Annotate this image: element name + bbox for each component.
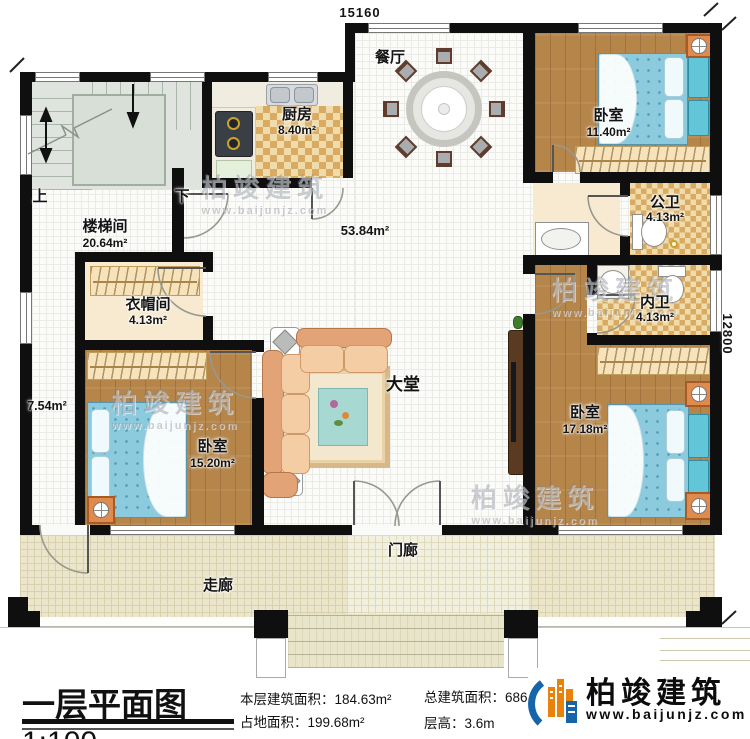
- bedroom2-nightstand: [686, 34, 712, 58]
- room-label-porch: 门廊: [373, 543, 433, 560]
- dining-table-center: [438, 103, 450, 115]
- stat-footprint: 占地面积：199.68m²: [240, 711, 365, 731]
- bedroom2-pillow-2: [664, 99, 684, 139]
- title-underline: [22, 719, 234, 724]
- room-label-bedroom1: 卧室: [160, 439, 265, 456]
- wall: [343, 82, 353, 178]
- window: [710, 195, 722, 255]
- wall: [620, 236, 630, 255]
- plan-title: 一层平面图: [22, 686, 187, 723]
- window: [35, 72, 80, 82]
- bedroom3-nightstand-2: [685, 492, 713, 520]
- window: [558, 525, 683, 535]
- stair-landing: [72, 94, 166, 186]
- ground-line-right: [660, 638, 750, 639]
- door-opening-hallway: [40, 525, 90, 535]
- wall: [75, 252, 213, 262]
- bedroom2-pillow-1: [664, 57, 684, 97]
- chair: [489, 101, 505, 117]
- sofa-cushion-left-2: [281, 394, 310, 434]
- room-label-dining: 餐厅: [352, 50, 428, 67]
- bedroom1-nightstand: [87, 496, 115, 524]
- bedroom1-pillow-2: [91, 456, 110, 500]
- room-label-bedroom2: 卧室: [556, 108, 661, 125]
- bedroom1-pillow-1: [91, 409, 110, 453]
- wall: [523, 172, 553, 183]
- bedroom2-wardrobe: [575, 146, 710, 174]
- stove-burner-2: [227, 137, 240, 150]
- corner-step-right2: [686, 611, 702, 627]
- wall: [587, 335, 712, 345]
- bedroom2-shelf-2: [688, 100, 709, 136]
- sofa-armrest-bottom: [262, 472, 298, 498]
- corner-step-right: [700, 597, 722, 627]
- dimension-right: 12800: [720, 298, 734, 370]
- room-area-private-bath: 4.13m²: [612, 311, 698, 324]
- room-area-stairwell: 20.64m²: [55, 237, 155, 250]
- window: [20, 115, 32, 175]
- stat-floor-area: 本层建筑面积：184.63m²: [240, 688, 392, 708]
- wall: [202, 82, 212, 188]
- bedroom3-shelf-1: [688, 414, 709, 458]
- window: [578, 23, 663, 33]
- wall: [523, 33, 535, 172]
- room-area-cloakroom: 4.13m²: [98, 314, 198, 327]
- logo-url: www.baijunjz.com: [586, 706, 747, 722]
- chair: [436, 151, 452, 167]
- logo: 柏竣建筑 www.baijunjz.com: [528, 668, 750, 734]
- room-label-bedroom3: 卧室: [531, 405, 639, 422]
- wall: [75, 340, 255, 350]
- wall: [203, 262, 213, 272]
- title-underline-2: [22, 728, 234, 730]
- entry-steps: [288, 614, 504, 668]
- room-area-bedroom1: 15.20m²: [160, 457, 265, 470]
- wall: [75, 262, 85, 347]
- wall: [523, 255, 535, 274]
- stair-up-label: 上: [28, 189, 52, 206]
- cloakroom-wardrobe: [90, 266, 200, 296]
- window: [150, 72, 205, 82]
- wall: [172, 168, 184, 252]
- step-pillar-right: [504, 610, 538, 638]
- stair-down-label: 下: [170, 189, 194, 206]
- tv-screen: [511, 362, 516, 442]
- wall: [252, 340, 264, 352]
- kitchen-sink-bowl-right: [294, 87, 314, 103]
- chair: [436, 48, 452, 64]
- room-area-public-bath: 4.13m²: [622, 211, 708, 224]
- sofa-cushion-top-2: [344, 345, 388, 373]
- rug-flower-2: [342, 412, 349, 419]
- bedroom3-wardrobe: [597, 347, 710, 375]
- door-opening-entrance: [352, 525, 442, 535]
- bedroom1-wardrobe: [87, 352, 207, 380]
- wall: [533, 255, 587, 265]
- wall: [580, 172, 712, 183]
- window: [368, 23, 450, 33]
- room-area-bedroom2: 11.40m²: [556, 126, 661, 139]
- bedroom2-shelf-1: [688, 56, 709, 98]
- bedroom3-pillow-1: [666, 410, 685, 454]
- wall: [212, 178, 312, 188]
- ground-line-right3: [660, 660, 750, 661]
- stat-height: 层高：3.6m: [424, 712, 495, 732]
- wall: [75, 350, 85, 525]
- room-label-kitchen: 厨房: [257, 107, 337, 124]
- wall: [587, 255, 712, 265]
- room-area-kitchen: 8.40m²: [257, 124, 337, 137]
- sofa-cushion-top-1: [300, 345, 344, 373]
- room-area-hallway: 7.54m²: [12, 400, 82, 414]
- bedroom3-pillow-2: [666, 458, 685, 502]
- kitchen-sink-bowl-left: [270, 87, 290, 103]
- alcove-basin: [541, 228, 581, 250]
- public-bath-drain: [670, 240, 678, 248]
- room-label-hall: 大堂: [361, 376, 445, 395]
- private-bath-basin: [600, 270, 626, 294]
- rug-leaf: [334, 420, 343, 426]
- sofa-cushion-left-3: [281, 434, 310, 474]
- window: [268, 72, 318, 82]
- floor-plan-page: 柏竣建筑www.baijunjz.com 柏竣建筑www.baijunjz.co…: [0, 0, 750, 739]
- open-area-label: 53.84m²: [315, 224, 415, 238]
- corner-step-left2: [24, 611, 40, 627]
- room-label-cloakroom: 衣帽间: [98, 297, 198, 314]
- rug-flower-1: [330, 400, 338, 408]
- bedroom3-nightstand-1: [685, 381, 713, 407]
- room-label-corridor: 走廊: [188, 578, 248, 595]
- step-pillar-left: [254, 610, 288, 638]
- ground-line-right2: [660, 650, 750, 651]
- chair: [383, 101, 399, 117]
- wall-plant: [513, 316, 523, 329]
- window: [20, 292, 32, 344]
- room-area-bedroom3: 17.18m²: [531, 423, 639, 436]
- logo-building-icon: [528, 671, 582, 731]
- window: [110, 525, 235, 535]
- dimension-top: 15160: [320, 6, 400, 20]
- room-label-stairwell: 楼梯间: [55, 219, 155, 236]
- wall: [587, 265, 597, 295]
- step-pillar-left-base: [256, 638, 286, 678]
- stove-burner-1: [227, 117, 240, 130]
